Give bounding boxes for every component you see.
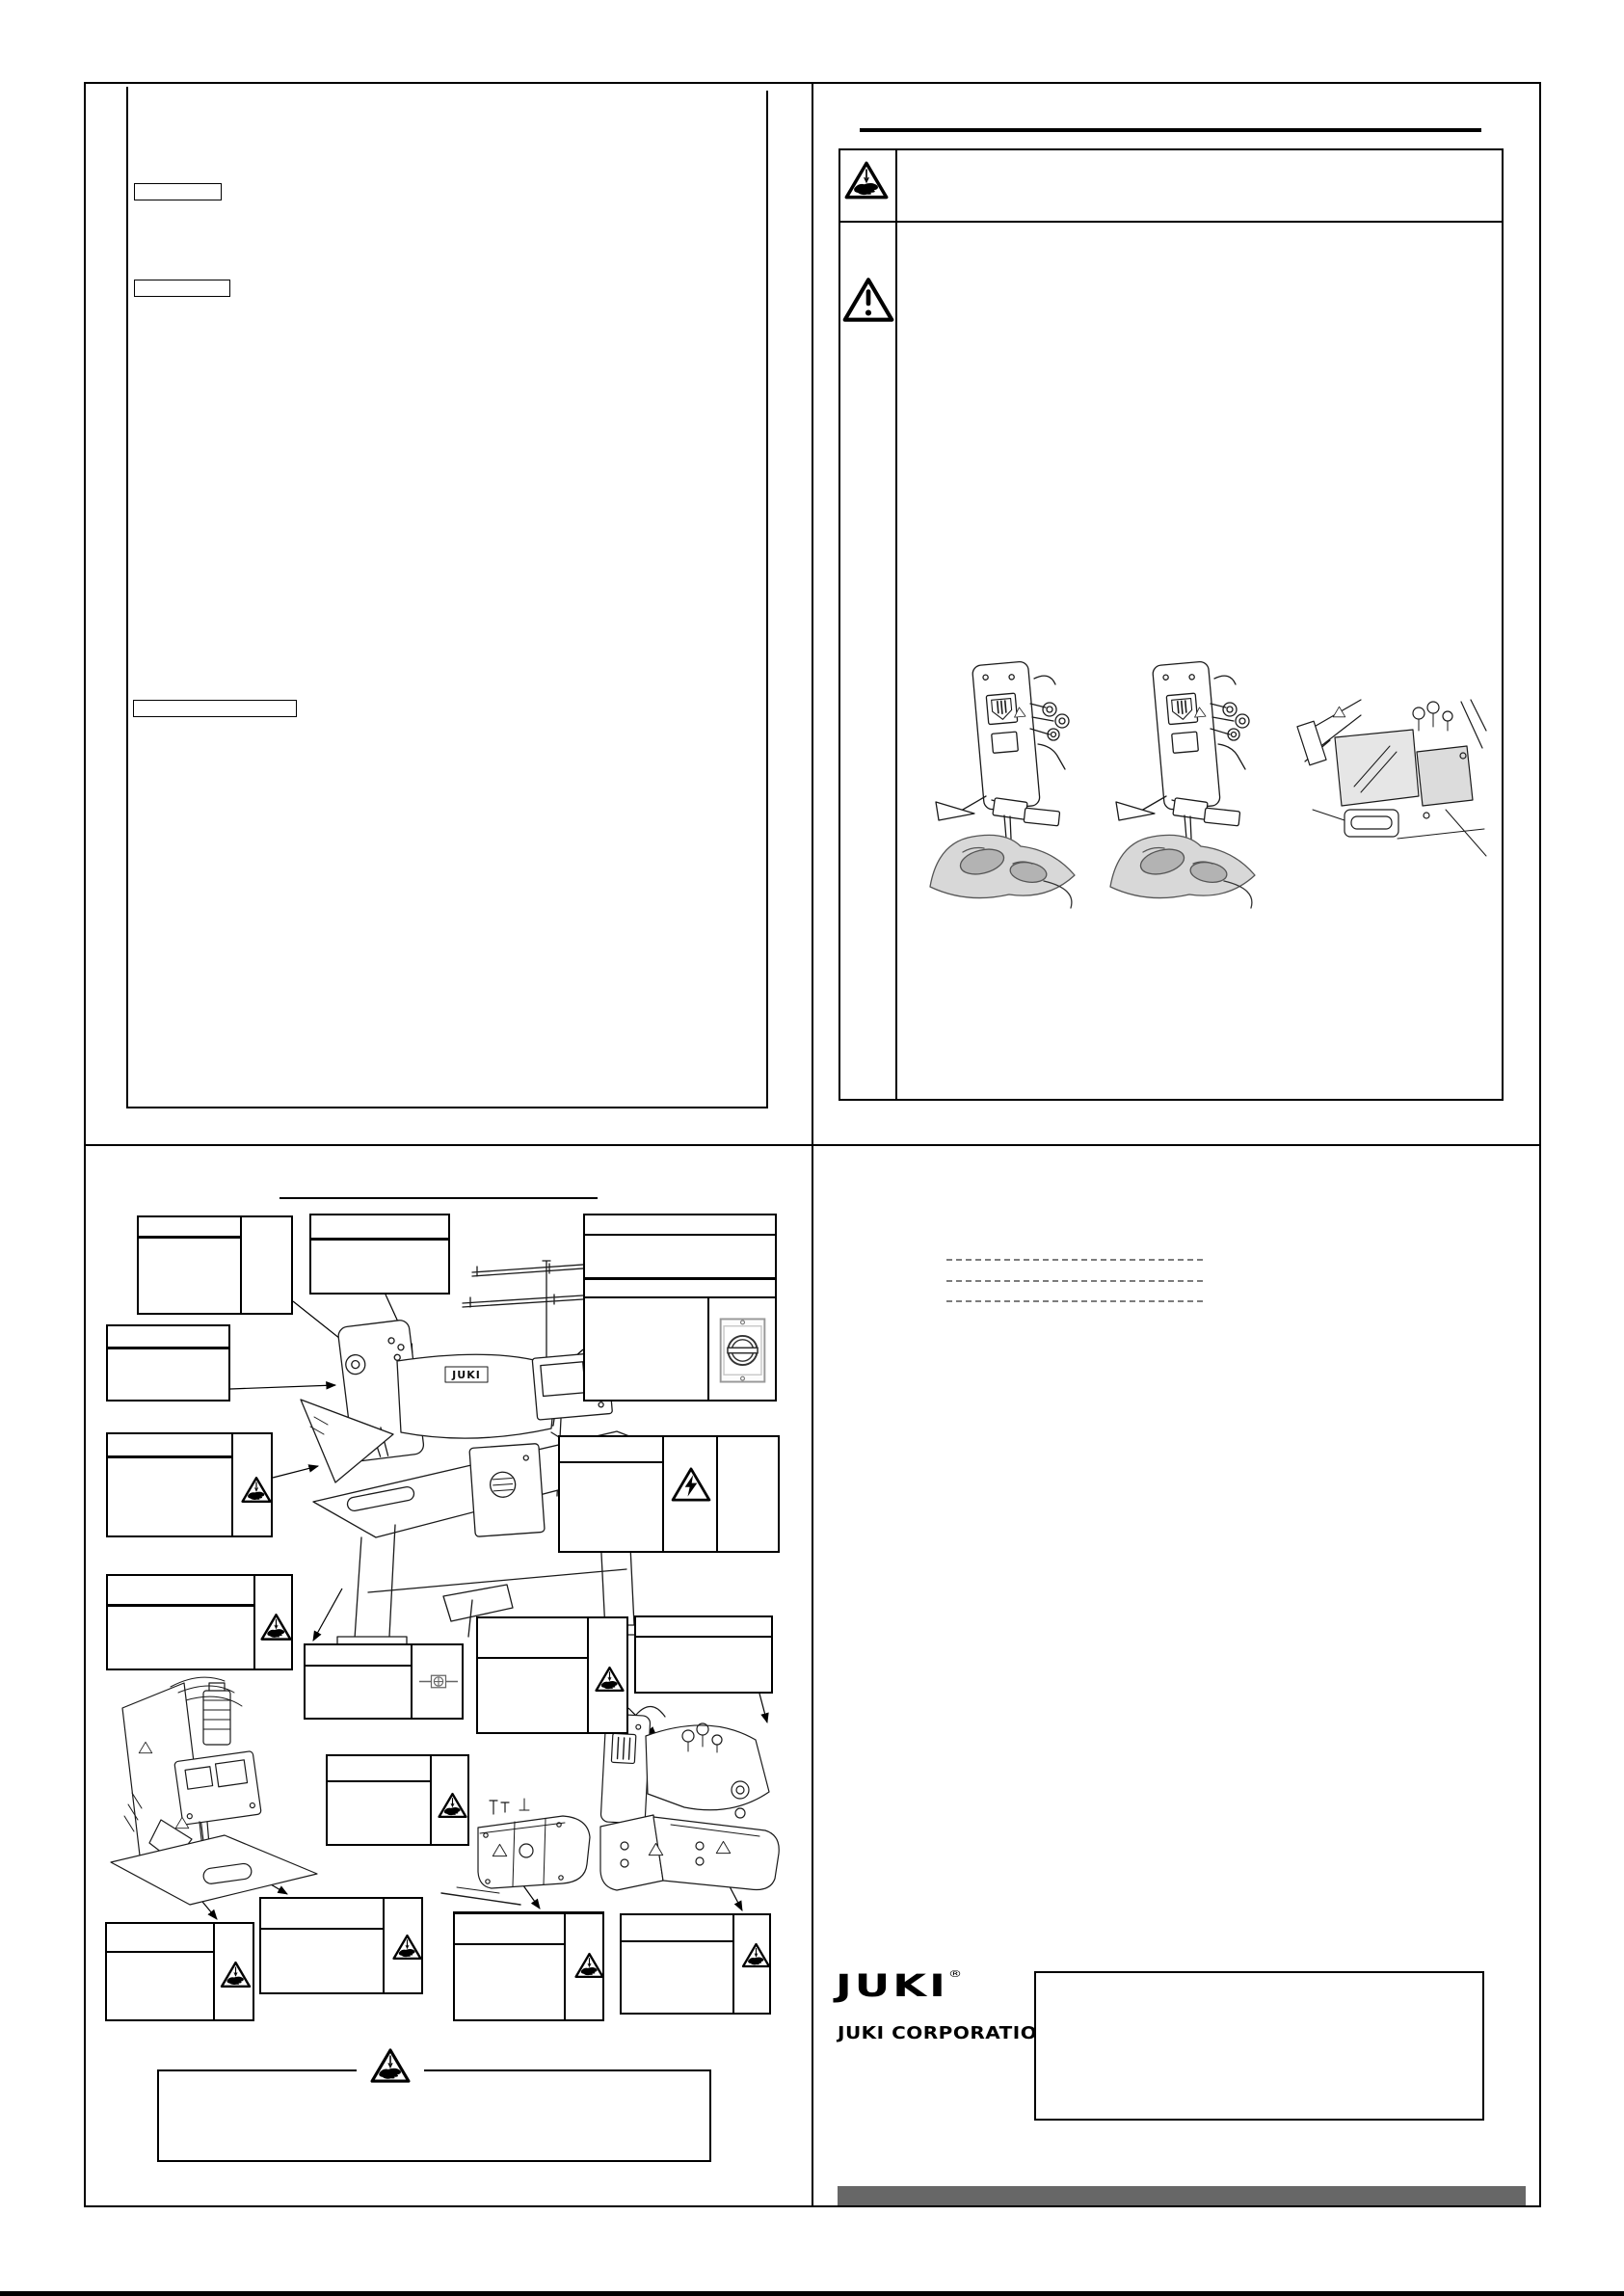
footer-bar — [838, 2186, 1526, 2205]
warning-hand-icon — [241, 1476, 272, 1504]
contact-line-2 — [946, 1280, 1203, 1282]
callout-box-bottom-1 — [105, 1922, 254, 2021]
callout-box-left-2 — [106, 1324, 230, 1402]
registered-trademark-mark: ® — [948, 1968, 962, 1980]
callout-box-ground — [304, 1643, 464, 1720]
q1-heading-box-2 — [134, 280, 230, 297]
callout-box-bottom-4 — [620, 1913, 771, 2015]
address-box — [1034, 1971, 1484, 2121]
warning-hand-icon — [741, 1942, 771, 1968]
warning-hand-icon — [260, 1613, 292, 1642]
warning-hand-icon — [438, 1792, 467, 1819]
q2-title-rule — [860, 128, 1481, 132]
callout-box-top-left — [137, 1215, 293, 1315]
manual-sheet: JUKI — [0, 0, 1624, 2296]
q1-heading-box-1 — [134, 183, 222, 200]
q1-inner-left-rule — [126, 87, 128, 1108]
q3-title-rule — [280, 1197, 598, 1199]
q1-inner-right-rule — [766, 91, 768, 1108]
warning-hand-icon — [595, 1666, 625, 1693]
power-switch-icon — [719, 1318, 766, 1383]
callout-box-bottom-3 — [453, 1911, 604, 2021]
warning-general-icon — [842, 276, 894, 324]
note-box-top-right-segment — [424, 2069, 711, 2071]
contact-line-3 — [946, 1300, 1203, 1302]
company-name: JUKI CORPORATION — [838, 2024, 1053, 2042]
q1-inner-bottom-rule — [126, 1107, 768, 1108]
warning-hand-icon — [370, 2047, 411, 2084]
callout-box-left-3 — [106, 1432, 273, 1537]
sheet-bottom-edge — [0, 2291, 1624, 2296]
callout-box-power-switch — [583, 1214, 777, 1402]
callout-box-left-4 — [106, 1574, 293, 1670]
juki-logo: JUKI® — [836, 1969, 962, 2002]
juki-logo-text: JUKI — [836, 1968, 948, 2004]
callout-box-bottom-2 — [259, 1897, 423, 1994]
callout-box-electric — [558, 1435, 780, 1553]
warning-hand-icon — [220, 1961, 252, 1989]
note-box-top-left-segment — [157, 2069, 357, 2071]
callout-box-top-center — [309, 1214, 450, 1295]
ground-icon — [419, 1673, 458, 1690]
note-box-wide — [157, 2069, 711, 2162]
q2-column-divider — [895, 150, 897, 1099]
q2-row-divider — [840, 221, 1502, 223]
warning-hand-icon — [392, 1934, 422, 1961]
contact-line-1 — [946, 1259, 1203, 1261]
divider-horizontal — [84, 1144, 1541, 1146]
callout-box-right-4 — [634, 1615, 773, 1694]
callout-box-right-3 — [476, 1616, 628, 1734]
callout-box-mid — [326, 1754, 469, 1846]
q2-warning-table — [839, 148, 1504, 1101]
warning-hand-icon — [844, 160, 889, 200]
warning-hand-icon — [574, 1952, 604, 1979]
q1-heading-box-3 — [133, 700, 297, 717]
warning-electric-icon — [671, 1466, 711, 1503]
